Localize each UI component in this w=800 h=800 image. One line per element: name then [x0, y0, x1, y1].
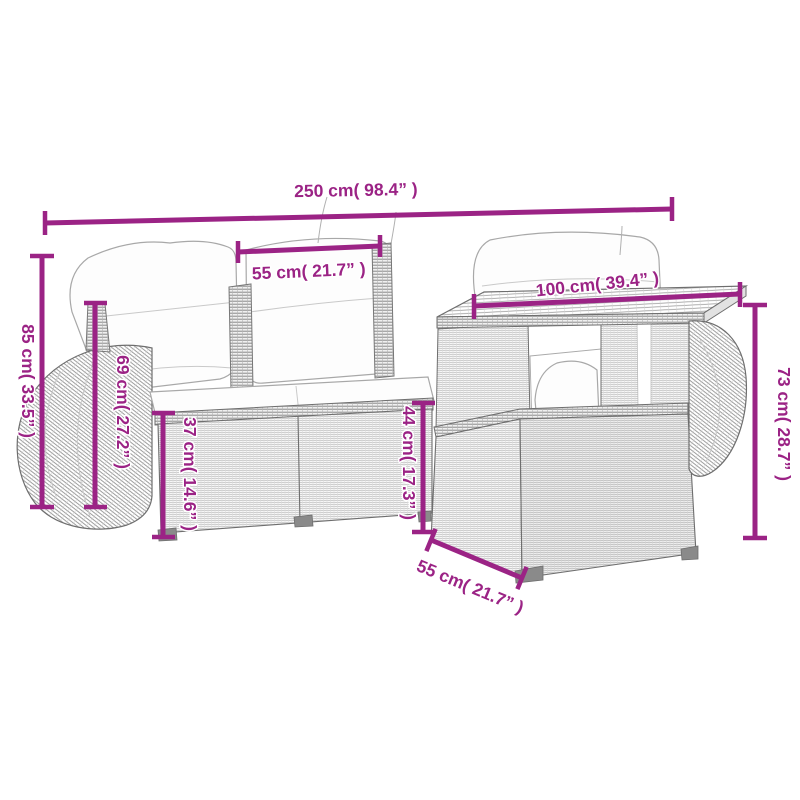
dimension-label-total-width: 250 cm( 98.4” ) [294, 179, 418, 201]
right-armrest-fan [689, 321, 746, 477]
table-box-left-face [431, 419, 522, 578]
table-slot [637, 319, 651, 408]
pillow-ear-line [318, 197, 327, 243]
sofa-foot [294, 515, 313, 527]
back-post [229, 284, 253, 391]
dimension-label-seat-height: 37 cm( 14.6” ) [180, 417, 200, 531]
dimension-label-table-height: 73 cm( 28.7” ) [774, 367, 794, 481]
dimension-label-total-height: 85 cm( 33.5” ) [18, 324, 38, 438]
dimension-total-width: 250 cm( 98.4” ) [45, 179, 672, 235]
table-box-right-face-shade [520, 414, 696, 578]
back-post [372, 243, 394, 378]
dimension-table-height: 73 cm( 28.7” ) [743, 305, 794, 538]
table-illustration [431, 286, 746, 583]
product-dimension-diagram: 250 cm( 98.4” ) 55 cm( 21.7” ) 100 cm( 3… [0, 0, 800, 800]
dimension-label-backrest-height: 69 cm( 27.2” ) [113, 355, 133, 469]
dimension-label-table-seat-height: 44 cm( 17.3” ) [399, 406, 419, 520]
product-dimension-page: 250 cm( 98.4” ) 55 cm( 21.7” ) 100 cm( 3… [0, 0, 800, 800]
